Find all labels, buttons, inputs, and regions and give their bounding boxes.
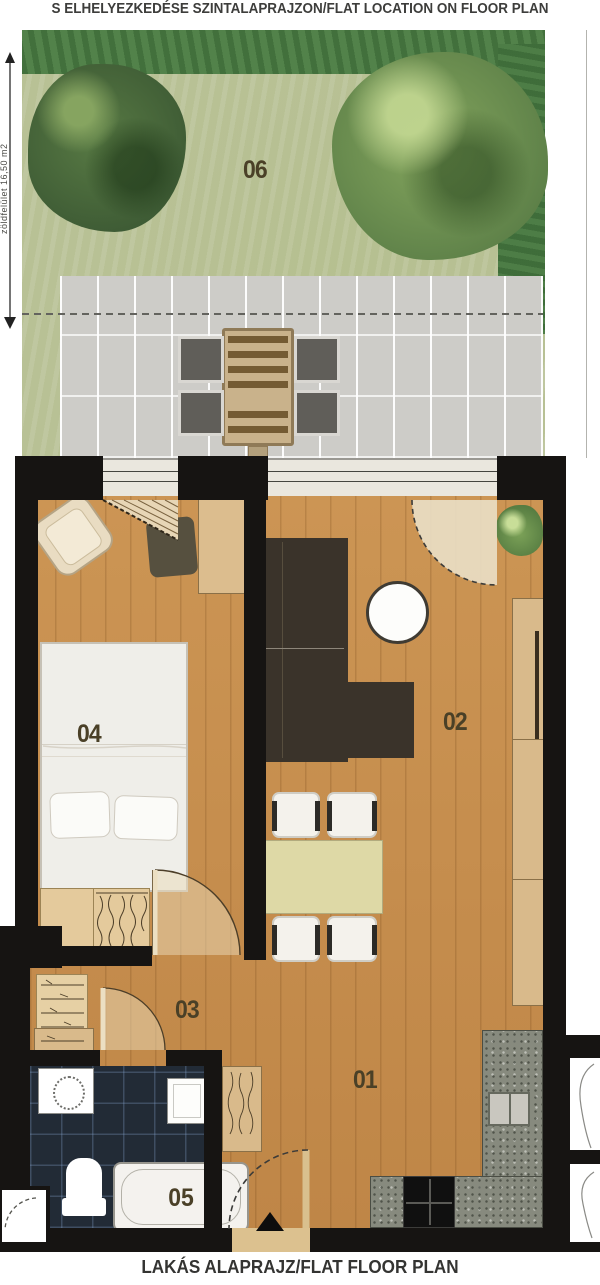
dining-chair — [327, 792, 377, 838]
washing-machine — [167, 1078, 207, 1124]
wardrobe-handle — [535, 631, 539, 739]
wall-segment — [30, 1050, 100, 1066]
bed — [40, 642, 188, 892]
living-terrace-window — [268, 458, 497, 496]
tree-left — [28, 64, 186, 232]
washbasin — [38, 1068, 94, 1114]
terrace-chair — [178, 390, 224, 436]
hall-cabinet — [34, 1028, 94, 1052]
terrace-table-band — [228, 390, 288, 406]
dining-chair — [272, 792, 320, 838]
neighbor-door-area — [2, 1190, 46, 1242]
room-label-garden: 06 — [243, 156, 267, 185]
wall-segment — [15, 456, 38, 952]
room-label-living: 02 — [443, 708, 467, 737]
terrace-chair — [294, 390, 340, 436]
dining-chair — [272, 916, 320, 962]
garden-boundary-line — [586, 30, 587, 458]
bed-fold-line — [42, 756, 186, 757]
wardrobe — [512, 598, 544, 1006]
terrace-chair — [178, 336, 224, 383]
potted-plant — [496, 505, 543, 556]
room-label-hall: 03 — [175, 996, 199, 1025]
toilet-bowl — [66, 1158, 102, 1202]
room-label-kitchen: 01 — [353, 1066, 377, 1095]
bedroom-terrace-window — [103, 458, 178, 496]
room-label-bedroom: 04 — [77, 720, 101, 749]
neighbor-area — [570, 1164, 600, 1242]
entrance-door-opening — [232, 1228, 310, 1252]
garden-area-label: zöldfelület 16,50 m2 — [0, 58, 13, 320]
tree-right — [332, 52, 548, 260]
toilet-tank — [62, 1198, 106, 1216]
bedroom-desk-chair — [146, 516, 199, 578]
dining-table — [263, 840, 383, 914]
wall-segment — [30, 946, 152, 966]
wall-segment — [244, 456, 266, 960]
page-title-bottom: LAKÁS ALAPRAJZ/FLAT FLOOR PLAN — [15, 1257, 585, 1278]
bedroom-desk — [198, 496, 248, 594]
pillow — [113, 795, 178, 841]
dining-chair — [327, 916, 377, 962]
terrace-chair — [294, 336, 340, 383]
wall-segment — [310, 1228, 566, 1252]
wall-segment — [543, 456, 566, 1252]
room-label-bathroom: 05 — [118, 1184, 243, 1213]
sofa-chaise — [348, 682, 414, 758]
floor-plan-page: S ELHELYEZKEDÉSE SZINTALAPRAJZON/FLAT LO… — [0, 0, 600, 1285]
stove — [403, 1176, 455, 1228]
coffee-table — [366, 581, 429, 644]
pillow — [49, 791, 111, 839]
shoe-cabinet — [222, 1066, 262, 1152]
neighbor-area — [570, 1058, 600, 1150]
terrace-table-slats — [228, 336, 288, 438]
page-title-top: S ELHELYEZKEDÉSE SZINTALAPRAJZON/FLAT LO… — [21, 1, 579, 17]
kitchen-sink — [488, 1092, 530, 1126]
kitchen-counter-bottom — [370, 1176, 543, 1228]
sofa — [258, 538, 348, 762]
bed-fold-line — [42, 744, 186, 745]
